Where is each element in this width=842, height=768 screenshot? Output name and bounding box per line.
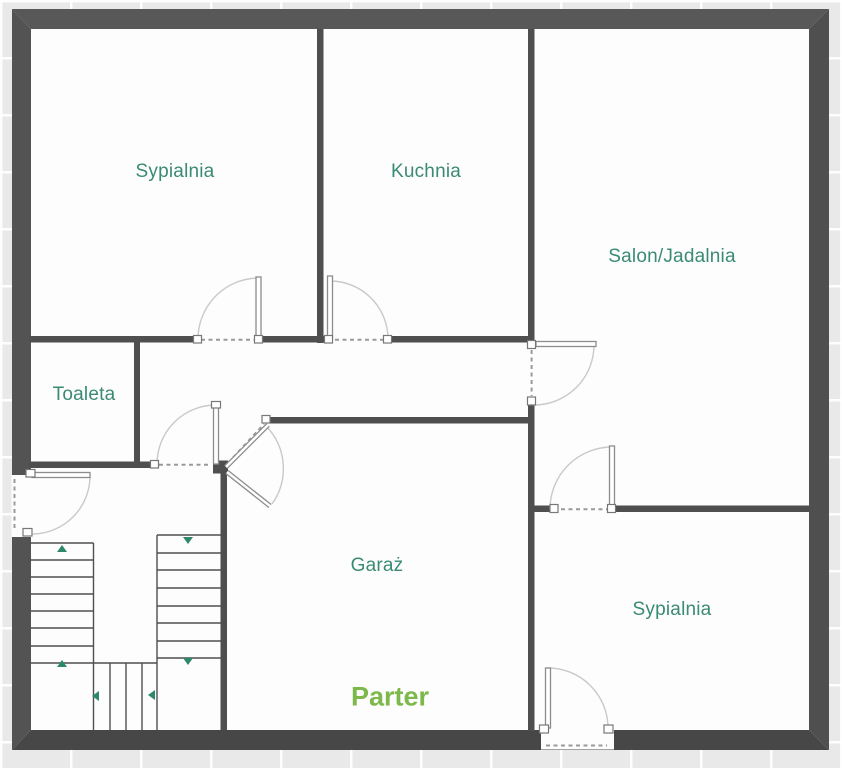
room-label-kuchnia: Kuchnia: [391, 161, 461, 183]
floor-area: [31, 29, 809, 730]
floor-title: Parter: [351, 682, 429, 713]
floor-plan-drawing: [0, 0, 842, 768]
room-label-toaleta: Toaleta: [53, 384, 116, 406]
door-sypialnia-1-leaf: [256, 277, 261, 339]
door-hall-leaf: [214, 405, 219, 464]
door-entrance-leaf: [32, 473, 90, 478]
floor-plan-canvas: Sypialnia Kuchnia Salon/Jadalnia Toaleta…: [0, 0, 842, 768]
door-sypialnia-2-leaf: [610, 446, 615, 509]
room-label-sypialnia-1: Sypialnia: [136, 161, 215, 183]
room-label-garaz: Garaż: [351, 555, 404, 577]
room-label-sypialnia-2: Sypialnia: [633, 599, 712, 621]
door-kuchnia-leaf: [328, 276, 333, 339]
door-exterior-bottom-leaf: [546, 668, 551, 728]
door-salon-leaf: [536, 342, 596, 347]
room-label-salon-jadalnia: Salon/Jadalnia: [608, 246, 735, 268]
